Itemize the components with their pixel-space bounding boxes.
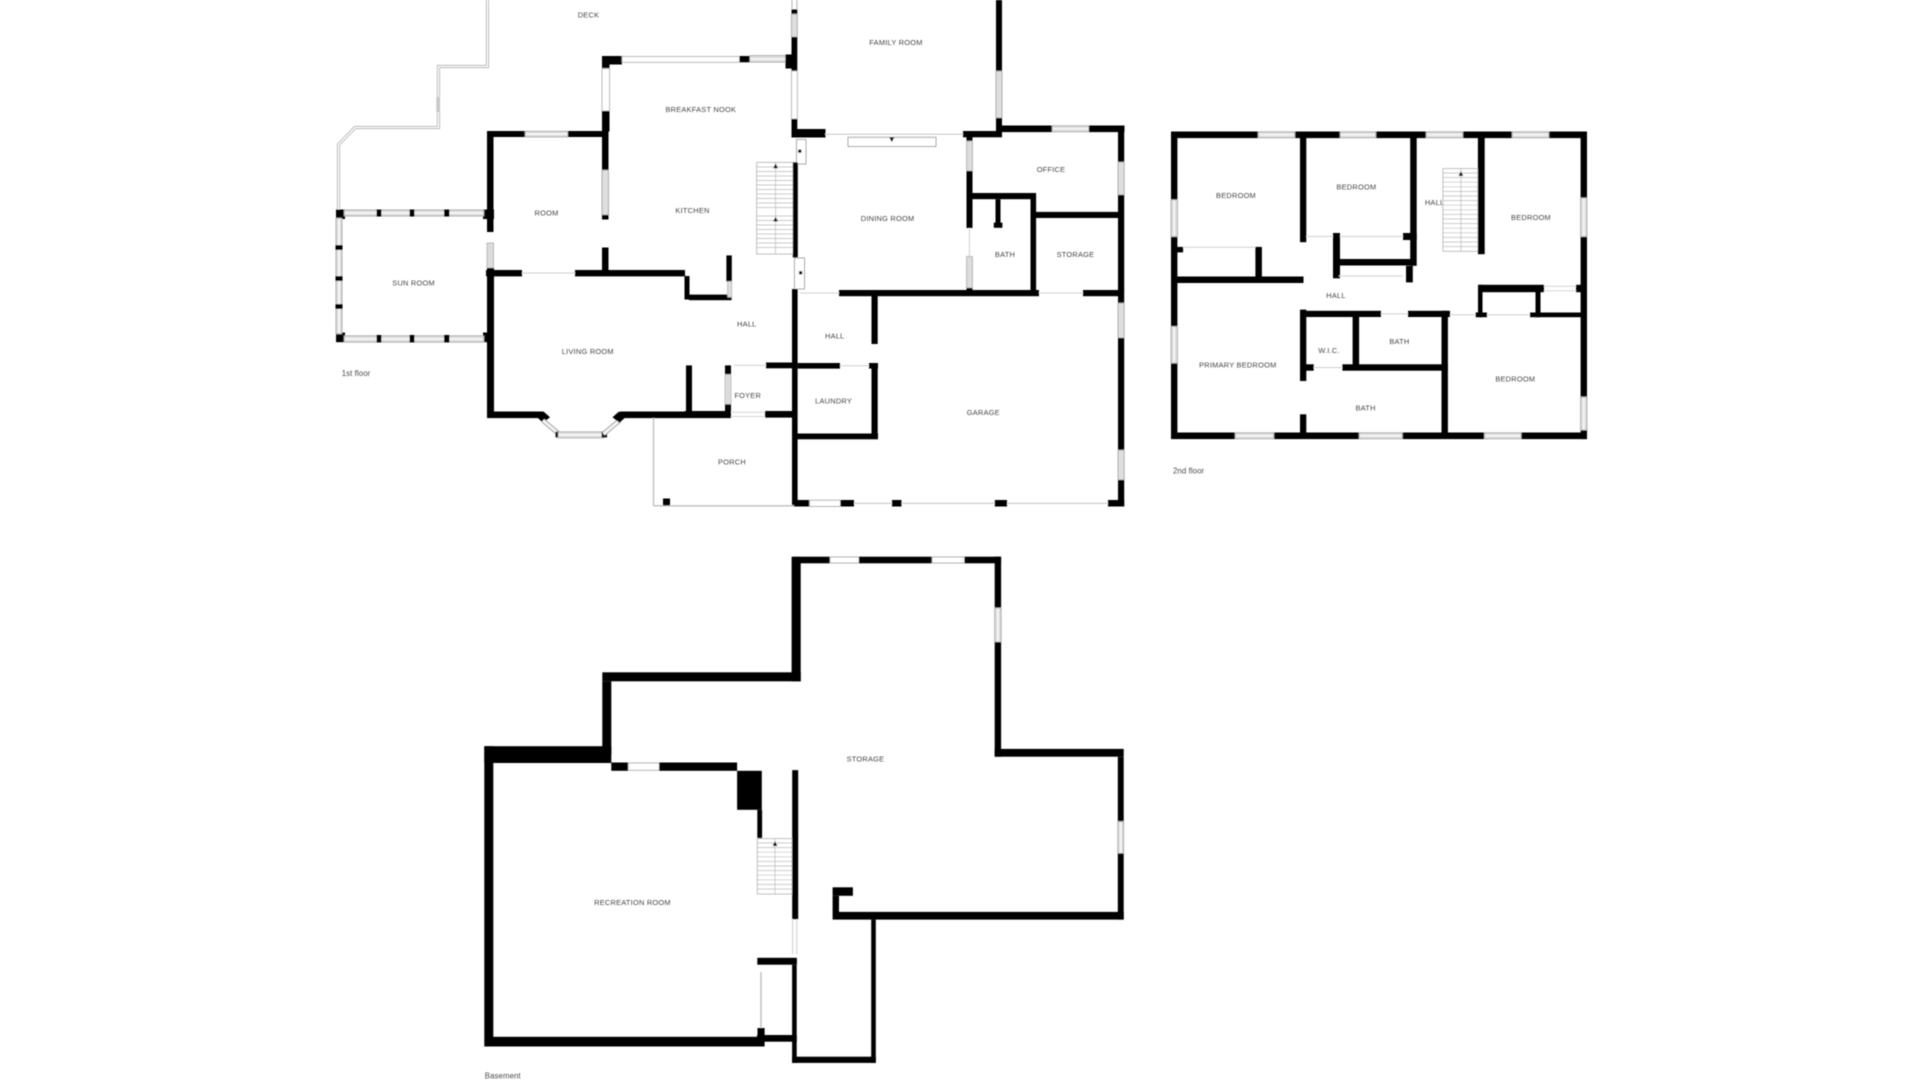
- svg-text:HALL: HALL: [1326, 291, 1346, 300]
- svg-text:FAMILY ROOM: FAMILY ROOM: [869, 38, 922, 47]
- svg-text:BREAKFAST NOOK: BREAKFAST NOOK: [665, 105, 736, 114]
- svg-text:OFFICE: OFFICE: [1037, 165, 1066, 174]
- svg-text:1st floor: 1st floor: [342, 369, 371, 378]
- svg-text:GARAGE: GARAGE: [967, 408, 1000, 417]
- svg-text:FOYER: FOYER: [734, 391, 761, 400]
- svg-text:2nd floor: 2nd floor: [1173, 467, 1205, 476]
- svg-text:BEDROOM: BEDROOM: [1511, 213, 1551, 222]
- svg-text:KITCHEN: KITCHEN: [675, 206, 709, 215]
- svg-text:BEDROOM: BEDROOM: [1336, 183, 1376, 192]
- svg-text:RECREATION ROOM: RECREATION ROOM: [594, 898, 671, 907]
- svg-text:HALL: HALL: [1425, 198, 1445, 207]
- svg-text:Basement: Basement: [485, 1072, 522, 1080]
- svg-text:W.I.C.: W.I.C.: [1318, 346, 1340, 355]
- svg-text:SUN ROOM: SUN ROOM: [392, 279, 435, 288]
- svg-text:PORCH: PORCH: [718, 458, 746, 467]
- svg-text:HALL: HALL: [737, 320, 757, 329]
- svg-text:BATH: BATH: [1356, 404, 1376, 413]
- svg-text:BEDROOM: BEDROOM: [1495, 375, 1535, 384]
- svg-text:LAUNDRY: LAUNDRY: [815, 397, 852, 406]
- svg-text:DECK: DECK: [578, 11, 600, 20]
- svg-text:BATH: BATH: [995, 250, 1015, 259]
- svg-text:BATH: BATH: [1389, 337, 1409, 346]
- svg-text:HALL: HALL: [825, 332, 845, 341]
- svg-text:STORAGE: STORAGE: [847, 755, 885, 764]
- svg-text:LIVING ROOM: LIVING ROOM: [562, 347, 614, 356]
- svg-text:PRIMARY BEDROOM: PRIMARY BEDROOM: [1199, 361, 1276, 370]
- svg-text:DINING ROOM: DINING ROOM: [861, 214, 915, 223]
- svg-text:ROOM: ROOM: [535, 209, 559, 218]
- svg-text:BEDROOM: BEDROOM: [1216, 191, 1256, 200]
- svg-text:STORAGE: STORAGE: [1057, 250, 1095, 259]
